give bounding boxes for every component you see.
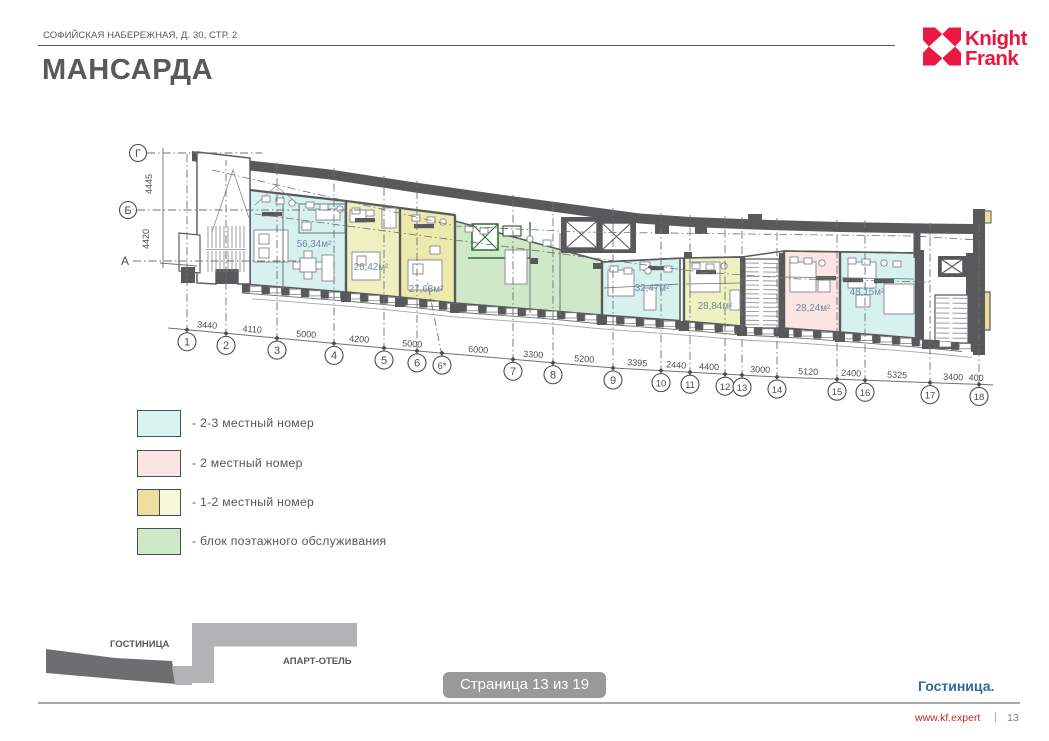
svg-text:7: 7 xyxy=(510,366,516,378)
svg-text:3: 3 xyxy=(274,345,280,357)
svg-text:Б: Б xyxy=(124,205,131,217)
svg-text:17: 17 xyxy=(925,390,936,401)
svg-text:27,68м²: 27,68м² xyxy=(409,284,444,295)
svg-text:15: 15 xyxy=(832,387,843,398)
svg-text:4200: 4200 xyxy=(349,334,370,345)
svg-text:3400: 3400 xyxy=(943,372,963,383)
svg-text:400: 400 xyxy=(968,372,983,383)
svg-text:12: 12 xyxy=(720,382,731,393)
svg-text:11: 11 xyxy=(685,380,695,391)
svg-text:2400: 2400 xyxy=(841,368,861,379)
svg-text:А: А xyxy=(121,254,129,268)
svg-text:5: 5 xyxy=(381,355,387,367)
svg-text:10: 10 xyxy=(656,378,667,389)
svg-text:3300: 3300 xyxy=(523,349,544,360)
svg-text:3440: 3440 xyxy=(197,319,218,330)
svg-text:56,34м²: 56,34м² xyxy=(297,239,332,250)
svg-text:26,42м²: 26,42м² xyxy=(354,262,389,273)
svg-text:3395: 3395 xyxy=(627,357,648,368)
svg-text:4110: 4110 xyxy=(242,324,262,335)
svg-text:2: 2 xyxy=(223,340,229,352)
svg-text:6000: 6000 xyxy=(468,344,489,355)
svg-text:28,24м²: 28,24м² xyxy=(796,303,831,314)
svg-text:5120: 5120 xyxy=(798,366,818,377)
svg-text:6: 6 xyxy=(414,358,420,370)
svg-text:8: 8 xyxy=(550,370,556,382)
svg-text:4400: 4400 xyxy=(699,361,719,372)
svg-text:5000: 5000 xyxy=(296,329,317,340)
svg-text:4420: 4420 xyxy=(141,229,151,249)
svg-text:13: 13 xyxy=(737,383,748,394)
svg-text:18: 18 xyxy=(974,392,985,403)
svg-text:14: 14 xyxy=(772,385,783,396)
svg-text:4445: 4445 xyxy=(144,174,154,194)
svg-text:28,84м²: 28,84м² xyxy=(698,301,733,312)
svg-text:16: 16 xyxy=(860,388,871,399)
svg-text:2440: 2440 xyxy=(666,359,687,370)
svg-text:5200: 5200 xyxy=(574,353,595,364)
svg-text:6*: 6* xyxy=(438,361,447,372)
svg-text:5325: 5325 xyxy=(887,369,907,380)
svg-text:9: 9 xyxy=(610,375,616,387)
svg-text:5000: 5000 xyxy=(402,338,423,349)
svg-text:4: 4 xyxy=(331,350,337,362)
svg-text:3000: 3000 xyxy=(750,364,770,375)
svg-text:48,15м²: 48,15м² xyxy=(850,287,885,298)
svg-text:32,47м²: 32,47м² xyxy=(635,283,670,294)
svg-text:1: 1 xyxy=(184,337,190,349)
svg-text:Г: Г xyxy=(135,148,141,160)
